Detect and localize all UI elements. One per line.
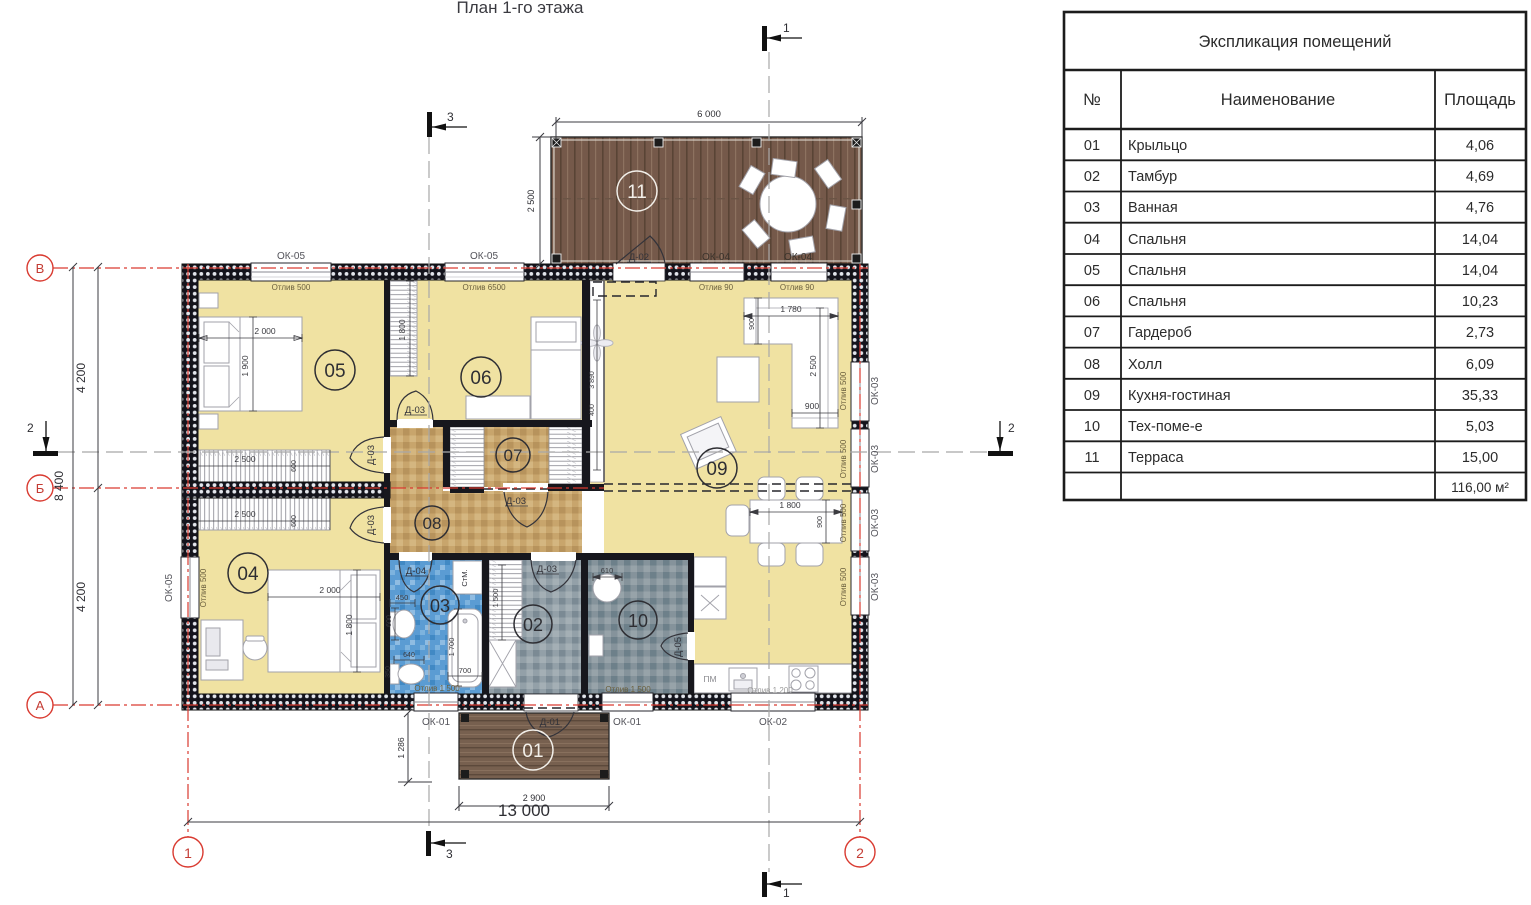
svg-text:Отлив 1 200: Отлив 1 200 <box>747 686 793 695</box>
svg-text:08: 08 <box>423 514 442 533</box>
svg-text:Спальня: Спальня <box>1128 232 1186 248</box>
svg-text:450: 450 <box>396 593 409 602</box>
svg-text:1 800: 1 800 <box>779 500 801 510</box>
svg-text:02: 02 <box>523 615 543 635</box>
svg-text:11: 11 <box>627 182 647 203</box>
svg-text:ОК-01: ОК-01 <box>613 717 641 728</box>
svg-text:Холл: Холл <box>1128 357 1162 373</box>
svg-text:07: 07 <box>504 446 523 465</box>
svg-text:05: 05 <box>324 361 345 382</box>
svg-text:Крыльцо: Крыльцо <box>1128 138 1187 154</box>
svg-text:1 700: 1 700 <box>447 638 456 657</box>
svg-text:07: 07 <box>1084 325 1100 341</box>
svg-text:06: 06 <box>470 368 491 389</box>
svg-text:600: 600 <box>291 460 298 472</box>
svg-text:ОК-03: ОК-03 <box>870 445 881 473</box>
svg-text:2 500: 2 500 <box>808 355 818 377</box>
svg-text:640: 640 <box>403 652 415 659</box>
svg-text:Д-03: Д-03 <box>405 405 425 416</box>
svg-text:2: 2 <box>27 421 34 435</box>
svg-text:04: 04 <box>237 564 259 585</box>
svg-text:8 400: 8 400 <box>52 471 66 501</box>
svg-text:3 890: 3 890 <box>589 371 596 389</box>
svg-text:5,03: 5,03 <box>1466 419 1494 435</box>
svg-text:Отлив 90: Отлив 90 <box>780 283 815 292</box>
svg-text:ОК-05: ОК-05 <box>470 251 498 262</box>
svg-text:08: 08 <box>1084 357 1100 373</box>
svg-text:13 000: 13 000 <box>498 801 550 820</box>
svg-text:Д-01: Д-01 <box>540 717 560 728</box>
svg-text:Наименование: Наименование <box>1221 91 1335 109</box>
svg-text:Отлив 500: Отлив 500 <box>839 503 848 542</box>
svg-text:2 500: 2 500 <box>234 509 256 519</box>
svg-text:Д-03: Д-03 <box>537 564 557 575</box>
svg-text:900: 900 <box>749 318 756 330</box>
svg-text:В: В <box>36 261 45 276</box>
svg-text:Тамбур: Тамбур <box>1128 169 1177 185</box>
svg-text:2 500: 2 500 <box>234 454 256 464</box>
svg-text:2,73: 2,73 <box>1466 325 1494 341</box>
svg-text:1 500: 1 500 <box>491 589 500 608</box>
svg-text:03: 03 <box>430 596 450 616</box>
svg-text:ОК-03: ОК-03 <box>870 377 881 405</box>
svg-text:Гардероб: Гардероб <box>1128 325 1192 341</box>
svg-text:09: 09 <box>706 459 727 480</box>
svg-text:Отлив 500: Отлив 500 <box>199 568 208 607</box>
svg-text:2: 2 <box>1008 421 1015 435</box>
svg-text:1 900: 1 900 <box>240 355 250 377</box>
svg-text:Д-05: Д-05 <box>673 637 684 657</box>
svg-text:2 500: 2 500 <box>526 190 536 213</box>
svg-text:700: 700 <box>459 666 472 675</box>
svg-text:1 800: 1 800 <box>344 614 354 636</box>
svg-text:Кухня-гостиная: Кухня-гостиная <box>1128 388 1231 404</box>
svg-text:2 000: 2 000 <box>254 326 276 336</box>
svg-text:ПМ: ПМ <box>703 674 716 684</box>
svg-text:610: 610 <box>601 566 614 575</box>
svg-text:6,09: 6,09 <box>1466 357 1494 373</box>
svg-text:05: 05 <box>1084 263 1100 279</box>
svg-text:14,04: 14,04 <box>1462 232 1498 248</box>
svg-text:Отлив 500: Отлив 500 <box>839 439 848 478</box>
svg-text:06: 06 <box>1084 294 1100 310</box>
svg-text:11: 11 <box>1084 450 1099 466</box>
svg-text:600: 600 <box>386 615 393 627</box>
svg-text:4 200: 4 200 <box>74 582 88 612</box>
svg-text:400: 400 <box>589 404 596 416</box>
svg-text:План 1-го этажа: План 1-го этажа <box>456 0 584 17</box>
svg-text:6 000: 6 000 <box>697 109 721 120</box>
svg-text:Терраса: Терраса <box>1128 450 1185 466</box>
svg-text:ОК-01: ОК-01 <box>422 717 450 728</box>
svg-text:Б: Б <box>36 481 45 496</box>
svg-text:10: 10 <box>628 611 648 631</box>
svg-text:14,04: 14,04 <box>1462 263 1498 279</box>
svg-text:Д-03: Д-03 <box>366 445 377 465</box>
svg-text:ОК-03: ОК-03 <box>870 509 881 537</box>
svg-text:350: 350 <box>385 666 392 678</box>
svg-text:1: 1 <box>783 21 790 35</box>
svg-text:Отлив 500: Отлив 500 <box>272 283 311 292</box>
svg-text:Отлив 1 500: Отлив 1 500 <box>605 685 651 694</box>
svg-text:4,06: 4,06 <box>1466 138 1494 154</box>
svg-text:900: 900 <box>817 516 824 528</box>
svg-text:1: 1 <box>783 886 790 900</box>
svg-text:4,69: 4,69 <box>1466 169 1494 185</box>
svg-text:3: 3 <box>447 110 454 124</box>
svg-text:04: 04 <box>1084 232 1100 248</box>
svg-text:09: 09 <box>1084 388 1100 404</box>
svg-text:Д-03: Д-03 <box>366 515 377 535</box>
svg-text:01: 01 <box>522 741 543 762</box>
svg-text:ОК-03: ОК-03 <box>870 573 881 601</box>
svg-text:03: 03 <box>1084 200 1100 216</box>
svg-text:35,33: 35,33 <box>1462 388 1498 404</box>
svg-text:Отлив 500: Отлив 500 <box>839 567 848 606</box>
svg-text:01: 01 <box>1084 138 1100 154</box>
svg-text:10: 10 <box>1084 419 1100 435</box>
svg-text:1 800: 1 800 <box>397 319 407 341</box>
svg-text:ОК-05: ОК-05 <box>277 251 305 262</box>
svg-text:4,76: 4,76 <box>1466 200 1494 216</box>
svg-text:Тех-поме-е: Тех-поме-е <box>1128 419 1203 435</box>
svg-text:3: 3 <box>446 847 453 861</box>
svg-text:1: 1 <box>184 845 192 861</box>
svg-text:1 286: 1 286 <box>396 737 406 759</box>
svg-text:2 900: 2 900 <box>523 793 546 803</box>
svg-text:СтМ.: СтМ. <box>460 569 469 586</box>
svg-text:Ванная: Ванная <box>1128 200 1178 216</box>
svg-text:№: № <box>1083 91 1101 109</box>
svg-text:600: 600 <box>291 515 298 527</box>
svg-text:Д-04: Д-04 <box>406 566 426 577</box>
svg-text:1 780: 1 780 <box>780 304 802 314</box>
svg-text:15,00: 15,00 <box>1462 450 1498 466</box>
svg-text:Спальня: Спальня <box>1128 263 1186 279</box>
svg-text:2: 2 <box>856 845 864 861</box>
svg-text:4 200: 4 200 <box>74 363 88 393</box>
svg-text:900: 900 <box>805 401 819 411</box>
svg-text:Экспликация помещений: Экспликация помещений <box>1199 33 1392 51</box>
svg-text:Д-03: Д-03 <box>506 496 526 507</box>
svg-text:А: А <box>36 698 45 713</box>
svg-text:ОК-04: ОК-04 <box>702 252 730 263</box>
svg-text:02: 02 <box>1084 169 1100 185</box>
svg-text:2 000: 2 000 <box>319 585 341 595</box>
svg-text:10,23: 10,23 <box>1462 294 1498 310</box>
svg-text:Отлив 90: Отлив 90 <box>699 283 734 292</box>
svg-text:ОК-05: ОК-05 <box>164 574 175 602</box>
svg-text:ОК-04: ОК-04 <box>784 252 812 263</box>
svg-text:Отлив 1 500: Отлив 1 500 <box>414 684 460 693</box>
svg-text:ОК-02: ОК-02 <box>759 717 787 728</box>
svg-text:116,00 м²: 116,00 м² <box>1451 480 1509 495</box>
svg-text:Площадь: Площадь <box>1444 91 1516 109</box>
svg-text:Д-02: Д-02 <box>629 252 649 263</box>
svg-text:Спальня: Спальня <box>1128 294 1186 310</box>
svg-text:Отлив 500: Отлив 500 <box>839 371 848 410</box>
svg-text:Отлив 6500: Отлив 6500 <box>462 283 506 292</box>
